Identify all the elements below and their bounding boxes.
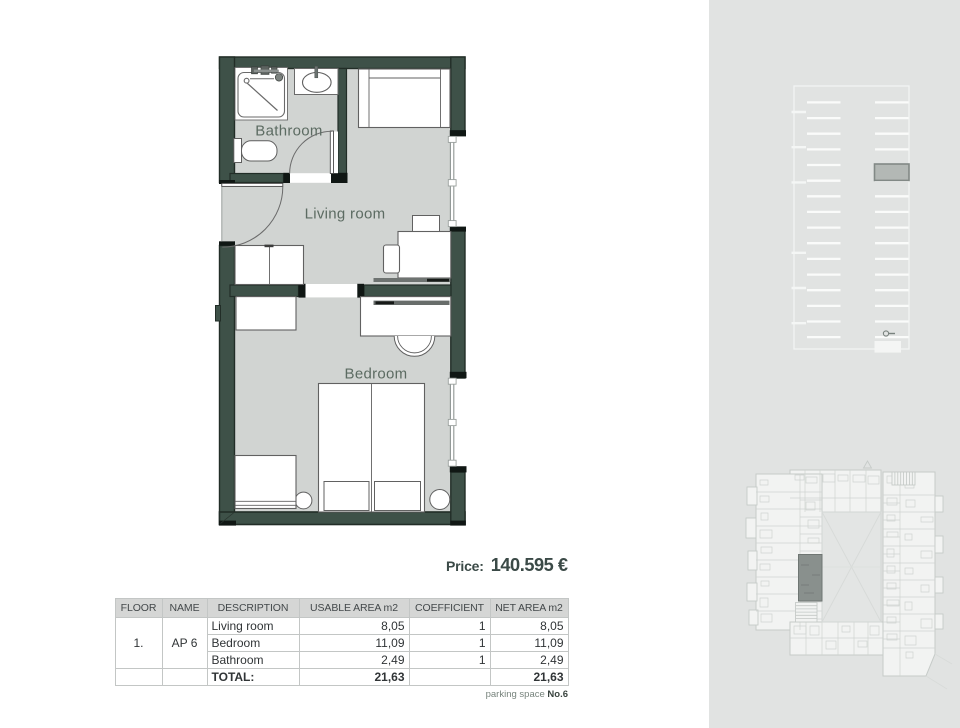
svg-text:Living room: Living room: [305, 205, 386, 222]
svg-text:Bathroom: Bathroom: [255, 122, 322, 139]
svg-text:Bedroom: Bedroom: [345, 366, 408, 383]
